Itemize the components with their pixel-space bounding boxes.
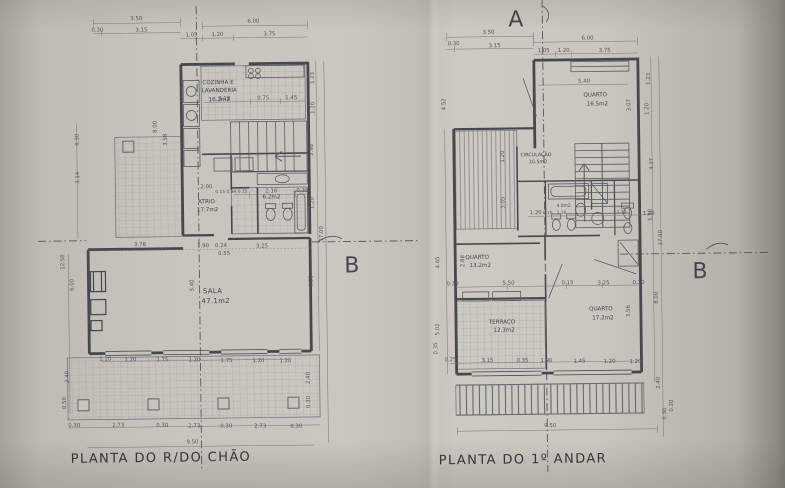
ground-floor-plan: COZINHA E LAVANDERIA 16.2m2 ATRIO 17.7m2… [35, 0, 449, 472]
dim: 1.20 [124, 357, 137, 363]
dim: 3.15 [489, 43, 501, 49]
dim: 0.30 [68, 423, 81, 429]
dim: 1.20 [99, 356, 112, 362]
dim: 1.20 [644, 102, 650, 115]
bedroom2-label: QUARTO [465, 255, 489, 261]
dim: 1.90 [540, 358, 553, 364]
dim: 3.25 [598, 280, 610, 286]
dim: 4.52 [441, 98, 447, 110]
dim: 0.30 [306, 395, 312, 408]
paper-fold-shadow [416, 0, 442, 488]
dim: 3.50 [130, 16, 143, 22]
dim: 0.20 [669, 399, 675, 412]
dim: 3.78 [134, 242, 147, 248]
dim: 1.90 [197, 243, 210, 249]
dim: 3.25 [256, 243, 268, 249]
dim: 0.25 [444, 357, 456, 363]
dim: 0.30 [662, 407, 668, 420]
atrium-area: 17.7m2 [197, 207, 219, 213]
dim: 0.15 0.84 0.15 [215, 189, 247, 195]
dim: 3.58 [163, 133, 169, 146]
dim: 2.00 [200, 184, 213, 190]
dim: 1.20 [188, 357, 201, 363]
dim: 1.05 [185, 32, 197, 38]
dim: 1.20 [252, 358, 265, 364]
dim: 1.20 [558, 48, 571, 54]
dim: 3.98 [309, 143, 315, 156]
dim: 3.15 [481, 358, 493, 364]
terrace-label: TERRAÇO [488, 319, 516, 325]
dim: 3.75 [263, 31, 275, 37]
dim: 0.30 [91, 27, 104, 33]
dim: 2.73 [112, 423, 124, 429]
dim: 2.40 [306, 371, 312, 384]
dim: 5.40 [189, 279, 195, 292]
circulation-area: 10.5m2 [529, 159, 547, 165]
dim-total: 9.50 [544, 423, 557, 429]
dim: 17.00 [658, 229, 664, 245]
section-a-marker: A [508, 7, 523, 32]
dim: 1.20 [530, 210, 543, 216]
bath-area: 4.0m2 [557, 203, 571, 209]
dim: 1.45 [573, 359, 585, 365]
first-floor-dim-lines [443, 31, 663, 440]
kitchen-label-1: COZINHA E [202, 80, 234, 86]
first-floor-title: PLANTA DO 1º ANDAR [439, 451, 608, 468]
dim: 1.75 [156, 357, 168, 363]
kitchen-label-2: LAVANDERIA [201, 88, 237, 94]
dim: 0.16 [543, 210, 553, 216]
dim: 6.39 [308, 274, 314, 287]
dim: 1.45 [285, 95, 297, 101]
dim: 1.05 [538, 48, 550, 54]
section-b-left-marker: B [344, 253, 359, 278]
dim: 1.26 [557, 210, 567, 216]
dim: 0.35 [516, 358, 528, 364]
bedroom2-area: 13.2m2 [470, 263, 492, 269]
dim: 8.00 [153, 120, 159, 133]
dim: 2.73 [254, 424, 266, 430]
dim: 3.15 [135, 27, 147, 33]
dim: 0.35 [296, 188, 308, 194]
dim: 1.20 [279, 358, 292, 364]
dim-total: 9.50 [186, 439, 199, 445]
wc-area: 6.2m2 [262, 194, 280, 200]
dim: 5.50 [502, 280, 515, 286]
dim: 3.50 [482, 30, 495, 36]
dim: 0.30 [156, 423, 169, 429]
ground-floor-title: PLANTA DO R/DO CHÃO [71, 449, 252, 467]
section-b-right-marker: B [692, 259, 707, 284]
dim: 6.00 [69, 278, 75, 291]
dim: 3.56 [626, 304, 632, 317]
dim: 1.20 [211, 32, 224, 38]
dim: 0.30 [75, 133, 81, 146]
bedroom3-area: 17.2m2 [592, 315, 614, 321]
fireplace [90, 271, 106, 330]
dim: 6.00 [582, 35, 595, 41]
dim: 3.07 [626, 99, 632, 111]
dim: 0.15 [561, 280, 573, 286]
dim: 12.50 [60, 254, 66, 270]
dim: 1.10 [617, 209, 627, 215]
dim: 6.00 [247, 19, 260, 25]
photo-paper: COZINHA E LAVANDERIA 16.2m2 ATRIO 17.7m2… [0, 0, 785, 488]
dim: 3.75 [599, 48, 611, 54]
dim: 3.05 [500, 197, 506, 209]
dim: 1.20 [603, 359, 616, 365]
dim: 1.20 [500, 150, 506, 163]
bedroom1-label: QUARTO [583, 92, 607, 98]
dim: 1.23 [310, 72, 316, 84]
dim: 1.20 [648, 208, 654, 221]
dim: 0.30 [632, 280, 645, 286]
dim: 0.30 [447, 281, 460, 287]
dim: 1.20 [310, 101, 316, 114]
dim: 8.00 [654, 291, 660, 304]
dim: 5.40 [578, 79, 591, 85]
dim: 0.50 [62, 396, 68, 409]
terrace-area: 12.3m2 [493, 327, 515, 333]
dim: 1.75 [220, 358, 232, 364]
dim: 4.37 [649, 158, 655, 170]
dim: 2.40 [65, 370, 71, 383]
dim: 3.14 [75, 171, 81, 184]
circulation-label: CIRCULAÇÃO [520, 151, 551, 158]
first-floor-plan: QUARTO 16.5m2 CIRCULAÇÃO 10.5m2 4.0m2 QU… [429, 0, 771, 473]
dim: 2.40 [656, 376, 662, 389]
dim: 0.30 [290, 424, 303, 430]
bedroom1-area: 16.5m2 [587, 101, 609, 107]
dim: 2.88 [460, 255, 466, 268]
dim: 0.55 [218, 251, 230, 257]
bedroom3-label: QUARTO [589, 306, 613, 312]
dim: 1.23 [646, 73, 652, 85]
dim: 2.73 [188, 423, 200, 429]
dim: 2.16 [265, 188, 278, 194]
dim: 0.75 [257, 95, 269, 101]
dim: 1.20 [629, 359, 642, 365]
ground-floor-stairs [231, 121, 308, 172]
living-area: 47.1m2 [201, 297, 230, 305]
dim: 1.20 [309, 196, 315, 209]
ground-floor-terraces [64, 65, 320, 420]
living-label: SALA [203, 287, 222, 295]
dim: 3.18 [218, 96, 231, 102]
dim: 0.24 [215, 243, 228, 249]
atrium-label: ATRIO [198, 199, 215, 205]
dim: 17.00 [319, 226, 325, 242]
dim: 0.30 [220, 423, 233, 429]
dim: 0.30 [448, 41, 461, 47]
floor-plan-sheet: COZINHA E LAVANDERIA 16.2m2 ATRIO 17.7m2… [0, 0, 785, 488]
